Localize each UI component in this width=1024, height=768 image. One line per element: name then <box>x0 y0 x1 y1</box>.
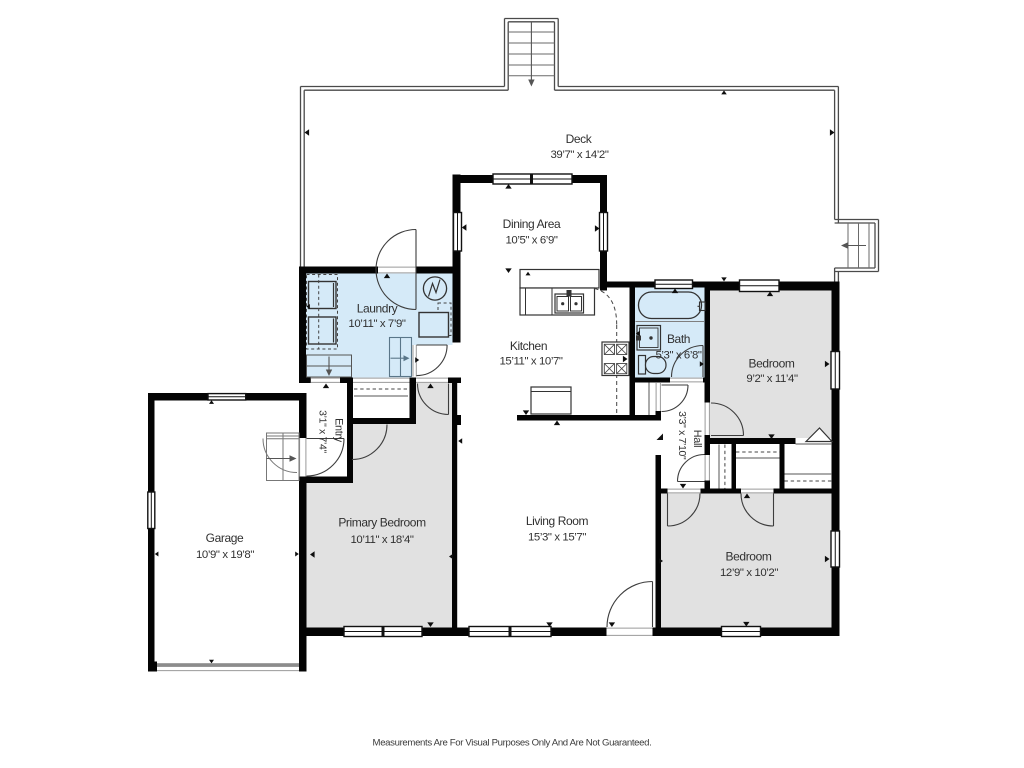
svg-text:Entry: Entry <box>333 418 345 443</box>
svg-text:Garage: Garage <box>206 531 244 545</box>
svg-text:Bath: Bath <box>667 332 690 346</box>
svg-text:Dining Area: Dining Area <box>503 217 561 231</box>
svg-text:Kitchen: Kitchen <box>510 339 547 353</box>
svg-text:Bedroom: Bedroom <box>726 550 772 564</box>
svg-text:Hall: Hall <box>691 430 703 447</box>
svg-text:10’11" x 18’4": 10’11" x 18’4" <box>350 534 413 546</box>
svg-text:10’5" x 6’9": 10’5" x 6’9" <box>505 235 557 247</box>
svg-text:39’7" x 14’2": 39’7" x 14’2" <box>551 149 609 161</box>
svg-text:Measurements Are For Visual Pu: Measurements Are For Visual Purposes Onl… <box>373 738 652 749</box>
svg-text:9’2" x 11’4": 9’2" x 11’4" <box>746 373 798 385</box>
svg-text:3’3" x 7’10": 3’3" x 7’10" <box>676 411 687 460</box>
svg-text:5’3" x 6’8": 5’3" x 6’8" <box>655 350 701 362</box>
svg-text:Laundry: Laundry <box>357 302 398 316</box>
svg-text:15’3" x 15’7": 15’3" x 15’7" <box>528 532 586 544</box>
svg-text:12’9" x 10’2": 12’9" x 10’2" <box>720 567 778 579</box>
svg-text:Primary Bedroom: Primary Bedroom <box>338 516 426 530</box>
svg-text:Living Room: Living Room <box>526 514 589 528</box>
svg-text:Deck: Deck <box>566 132 593 146</box>
svg-text:15’11" x 10’7": 15’11" x 10’7" <box>499 356 562 368</box>
svg-text:10’11" x 7’9": 10’11" x 7’9" <box>348 318 405 330</box>
svg-text:10’9" x 19’8": 10’9" x 19’8" <box>196 549 254 561</box>
svg-text:3’1" x 7’4": 3’1" x 7’4" <box>317 410 328 453</box>
svg-text:Bedroom: Bedroom <box>749 357 795 371</box>
